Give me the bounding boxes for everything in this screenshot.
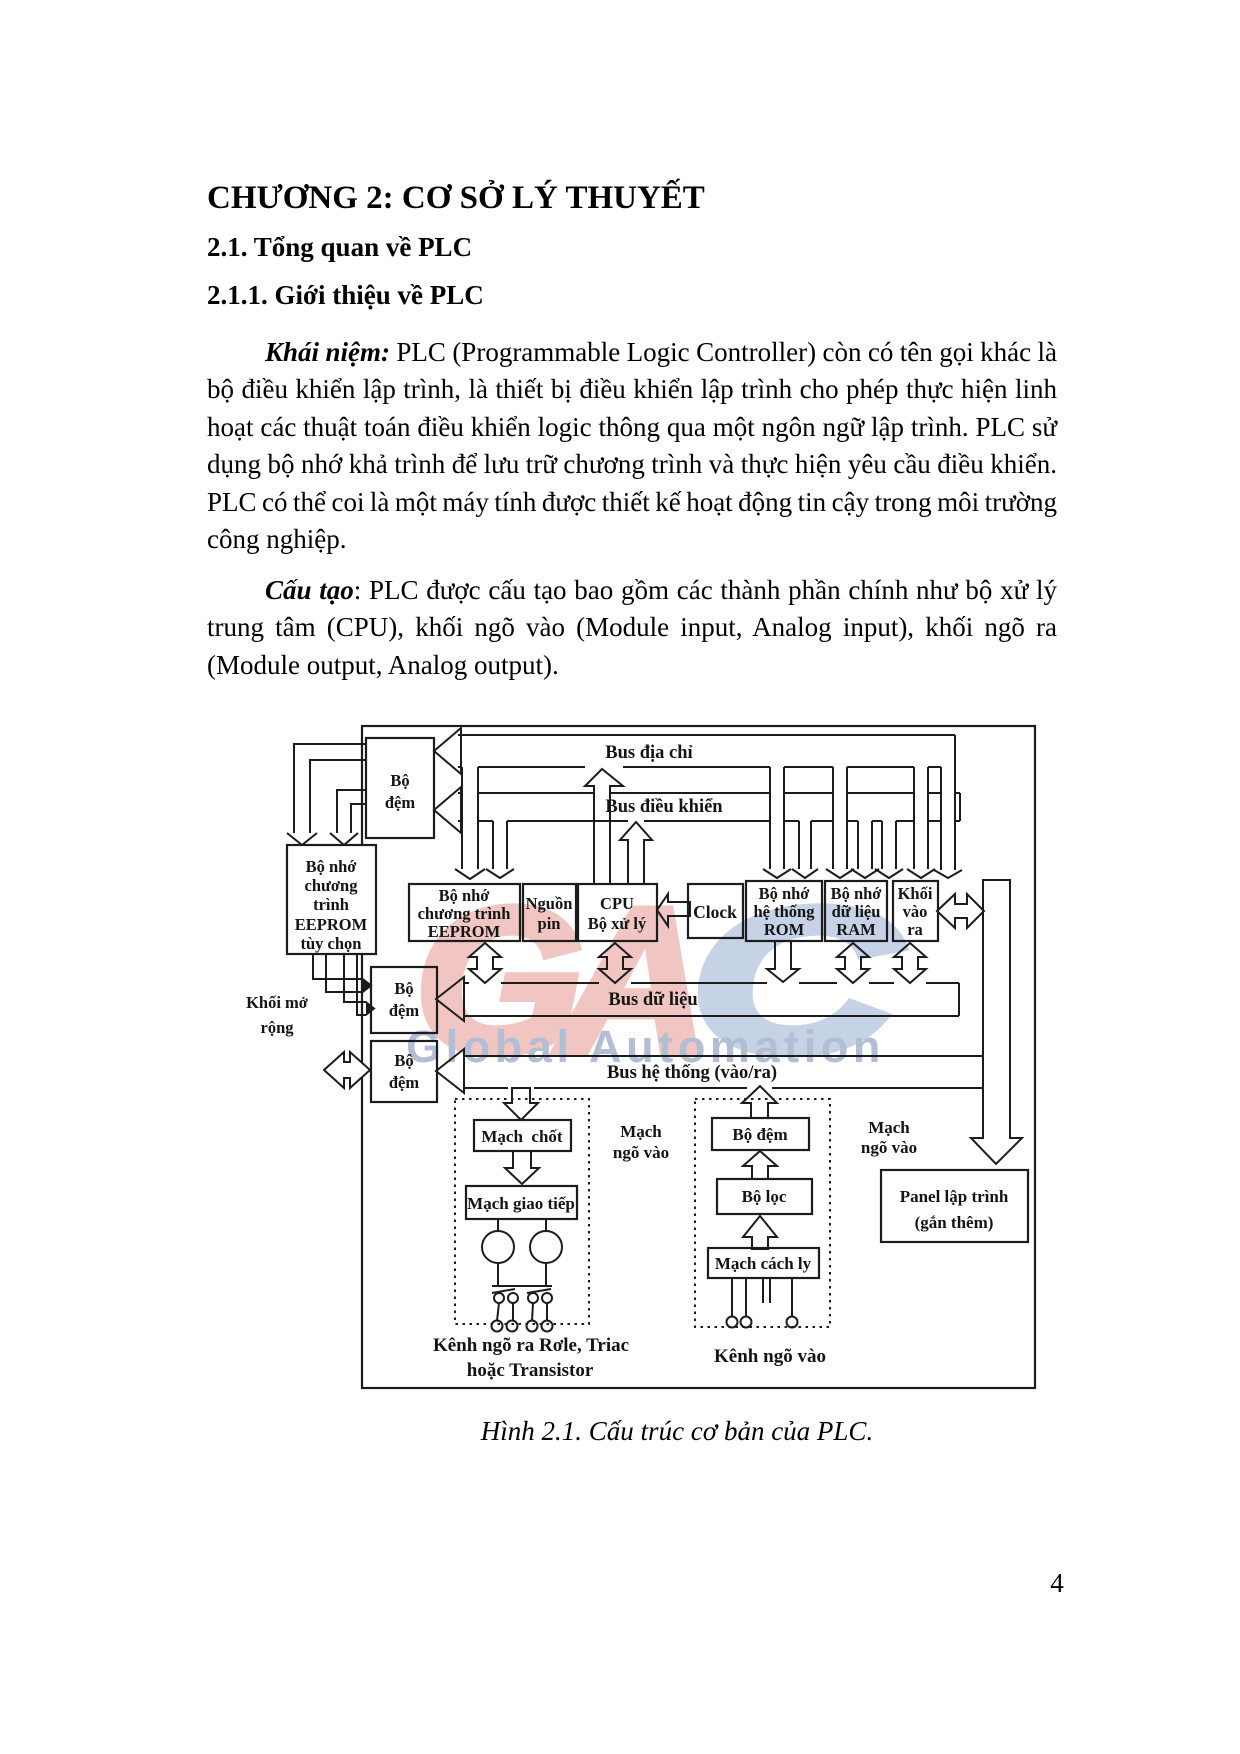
svg-text:ngõ vào: ngõ vào	[613, 1143, 669, 1162]
svg-text:Bộ lọc: Bộ lọc	[742, 1187, 787, 1206]
svg-text:EEPROM: EEPROM	[428, 922, 501, 941]
svg-text:trình: trình	[313, 895, 349, 914]
svg-text:Bộ: Bộ	[390, 771, 409, 790]
svg-text:hoặc Transistor: hoặc Transistor	[467, 1360, 594, 1381]
svg-text:Panel lập trình: Panel lập trình	[900, 1187, 1009, 1206]
svg-text:Bus địa chỉ: Bus địa chỉ	[605, 743, 692, 763]
svg-text:Mạch: Mạch	[620, 1122, 662, 1141]
svg-text:chương: chương	[305, 876, 359, 895]
svg-text:ROM: ROM	[764, 920, 805, 939]
svg-text:ra: ra	[907, 920, 923, 939]
svg-text:Bộ xử lý: Bộ xử lý	[588, 914, 647, 933]
svg-text:pin: pin	[538, 914, 561, 933]
svg-text:RAM: RAM	[836, 920, 876, 939]
svg-text:Bộ nhớ: Bộ nhớ	[439, 886, 491, 905]
svg-text:Bộ đệm: Bộ đệm	[732, 1125, 787, 1144]
svg-text:Bộ nhớ: Bộ nhớ	[759, 884, 811, 903]
svg-text:Bộ nhớ: Bộ nhớ	[831, 884, 883, 903]
svg-text:Bộ: Bộ	[394, 1051, 413, 1070]
svg-text:Bus điều khiển: Bus điều khiển	[605, 797, 723, 817]
svg-text:Khối mở: Khối mở	[246, 993, 309, 1012]
svg-text:đệm: đệm	[389, 1001, 420, 1020]
svg-text:chương trình: chương trình	[418, 904, 511, 923]
svg-text:Mạch chốt: Mạch chốt	[481, 1127, 563, 1146]
svg-text:Kênh ngõ ra Rơle, Triac: Kênh ngõ ra Rơle, Triac	[433, 1335, 629, 1356]
svg-text:đệm: đệm	[385, 793, 416, 812]
svg-text:dữ liệu: dữ liệu	[832, 902, 881, 921]
svg-text:rộng: rộng	[261, 1018, 295, 1037]
svg-text:Mạch giao tiếp: Mạch giao tiếp	[467, 1194, 575, 1213]
svg-text:Nguồn: Nguồn	[526, 894, 573, 913]
svg-text:Mạch cách ly: Mạch cách ly	[715, 1254, 812, 1273]
svg-text:hệ thống: hệ thống	[754, 902, 816, 921]
svg-text:tùy chọn: tùy chọn	[301, 934, 362, 953]
svg-text:đệm: đệm	[389, 1073, 420, 1092]
svg-text:Kênh ngõ vào: Kênh ngõ vào	[714, 1346, 826, 1367]
svg-text:Khối: Khối	[898, 884, 933, 903]
svg-text:Clock: Clock	[693, 902, 737, 922]
svg-text:Bus hệ thống (vào/ra): Bus hệ thống (vào/ra)	[607, 1063, 777, 1083]
svg-text:Bộ: Bộ	[394, 979, 413, 998]
svg-text:Bus dữ liệu: Bus dữ liệu	[608, 990, 697, 1010]
svg-text:EEPROM: EEPROM	[295, 915, 368, 934]
svg-text:(gắn thêm): (gắn thêm)	[915, 1213, 994, 1232]
svg-text:CPU: CPU	[600, 894, 634, 913]
svg-text:vào: vào	[903, 902, 928, 921]
svg-text:ngõ vào: ngõ vào	[861, 1138, 917, 1157]
svg-text:Mạch: Mạch	[868, 1118, 910, 1137]
svg-text:Bộ nhớ: Bộ nhớ	[306, 857, 358, 876]
